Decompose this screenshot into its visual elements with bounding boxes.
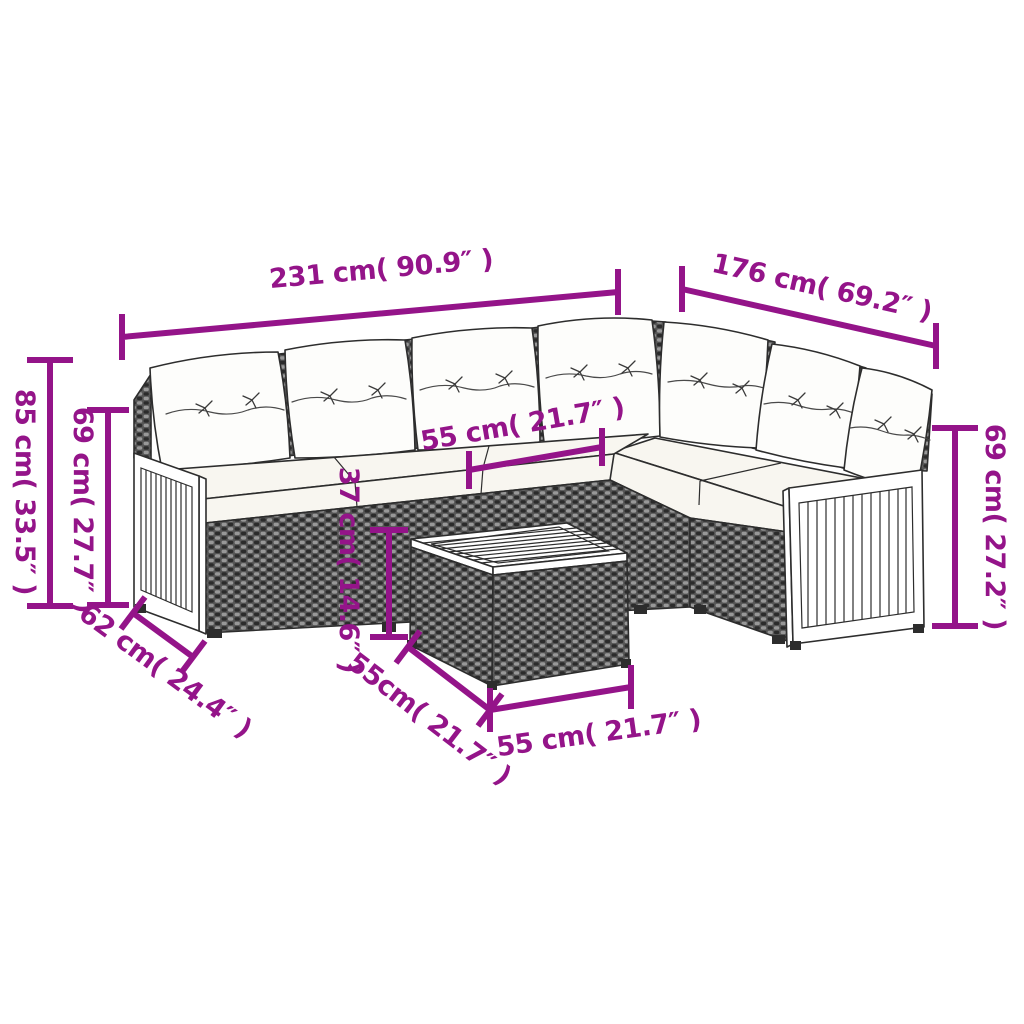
coffee-table (407, 523, 631, 690)
product-dimension-image: 231 cm( 90.9″ ) 176 cm( 69.2″ ) 85 cm( 3… (0, 0, 1024, 1024)
dim-table-width-label: 55 cm( 21.7″ ) (495, 704, 704, 763)
dim-left-back-height: 69 cm( 27.7″ ) (67, 407, 129, 613)
dim-sofa-right-length-label: 176 cm( 69.2″ ) (709, 248, 935, 328)
dim-total-height: 85 cm( 33.5″ ) (9, 360, 73, 606)
back-cushion-1 (150, 352, 290, 470)
dim-total-height-label: 85 cm( 33.5″ ) (9, 389, 40, 595)
back-cushion-6 (756, 344, 860, 468)
table-body-right (492, 561, 629, 686)
dim-sofa-left-length-label: 231 cm( 90.9″ ) (268, 244, 494, 295)
dim-left-back-height-label: 69 cm( 27.7″ ) (67, 407, 98, 613)
right-base (690, 518, 793, 643)
dimension-diagram-svg: 231 cm( 90.9″ ) 176 cm( 69.2″ ) 85 cm( 3… (0, 0, 1024, 1024)
left-armrest (134, 453, 206, 634)
dim-right-back-height: 69 cm( 27.2″ ) (932, 424, 1010, 630)
dim-seat-height-label: 37 cm( 14.6″ ) (333, 467, 364, 673)
right-armrest (783, 470, 924, 650)
dim-right-back-height-label: 69 cm( 27.2″ ) (979, 424, 1010, 630)
